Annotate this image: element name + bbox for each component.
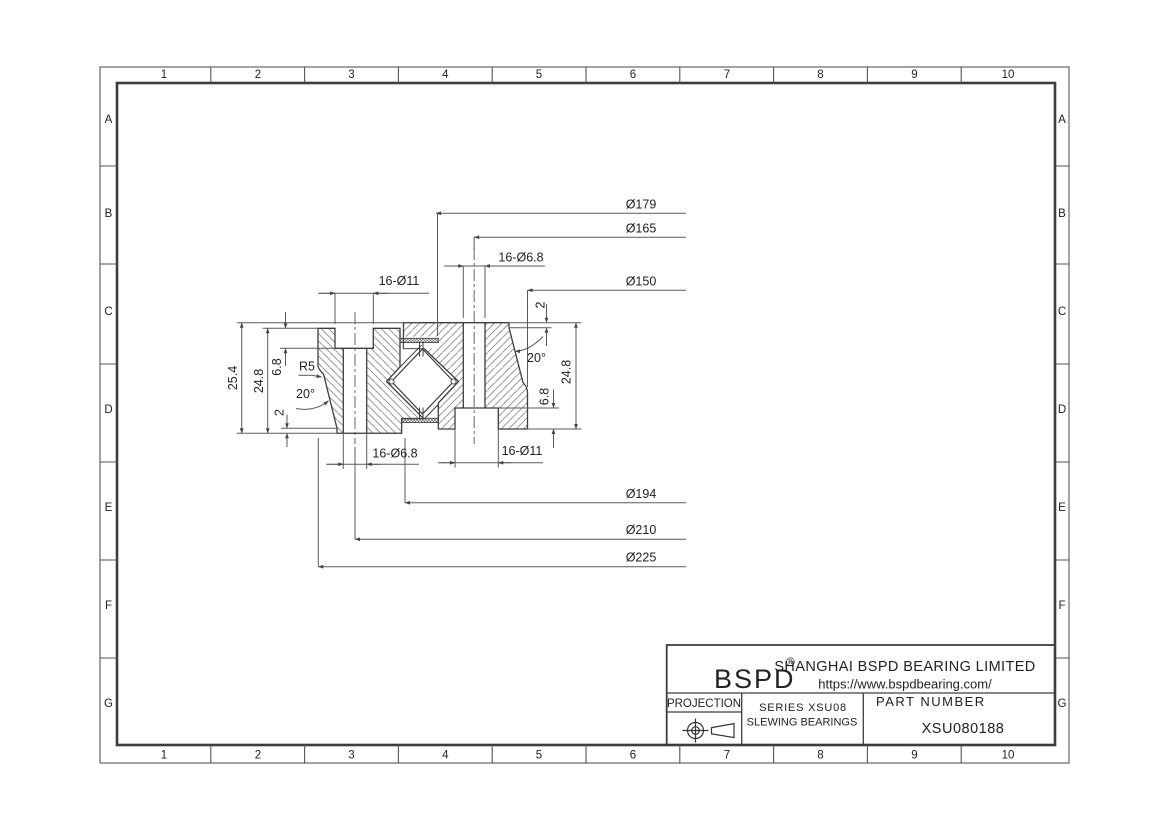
col-label-top: 7 — [724, 69, 730, 81]
row-label-left: F — [105, 600, 112, 612]
col-label-bottom: 2 — [255, 750, 261, 762]
grid-labels: 1 2 3 4 5 6 7 8 9 10 1 2 3 4 5 6 7 8 9 1… — [104, 69, 1067, 762]
dim-holes11-bottom: 16-Ø11 — [502, 444, 543, 458]
projection-label: PROJECTION — [667, 698, 741, 710]
dim-dia194: Ø194 — [626, 487, 657, 501]
dim-h254: 25.4 — [226, 366, 240, 390]
dim-dia150: Ø150 — [626, 275, 657, 289]
dim-dia165: Ø165 — [626, 222, 657, 236]
dim-lip2-bottom: 2 — [273, 409, 287, 416]
projection-symbol-icon — [683, 719, 735, 743]
dim-r5: R5 — [299, 360, 315, 374]
row-label-right: B — [1058, 208, 1066, 220]
part-number-value: XSU080188 — [922, 721, 1005, 737]
col-label-top: 5 — [536, 69, 542, 81]
part-number-label: PART NUMBER — [876, 694, 986, 709]
col-label-bottom: 1 — [161, 750, 167, 762]
col-label-top: 1 — [161, 69, 167, 81]
dim-dia225: Ø225 — [626, 551, 657, 565]
col-label-bottom: 8 — [817, 750, 823, 762]
company-name: SHANGHAI BSPD BEARING LIMITED — [774, 659, 1035, 675]
row-label-left: C — [104, 306, 112, 318]
roller-corner-relief — [451, 379, 456, 384]
row-label-right: C — [1058, 306, 1066, 318]
dim-holes68-top: 16-Ø6.8 — [498, 251, 543, 265]
col-label-bottom: 3 — [348, 750, 354, 762]
row-label-right: D — [1058, 404, 1066, 416]
roller-corner-relief — [389, 379, 394, 384]
row-label-right: G — [1058, 698, 1067, 710]
dim-d68-right: 6.8 — [538, 388, 552, 405]
dim-d68-left: 6.8 — [270, 358, 284, 375]
dim-dia179: Ø179 — [626, 198, 657, 212]
dim-dia210: Ø210 — [626, 523, 657, 537]
col-label-top: 6 — [630, 69, 636, 81]
col-label-top: 10 — [1002, 69, 1015, 81]
dim-holes11-top: 16-Ø11 — [379, 274, 420, 288]
dim-angle20-right: 20° — [527, 351, 546, 365]
title-block: BSPD ® SHANGHAI BSPD BEARING LIMITED htt… — [667, 645, 1055, 745]
dim-holes68-bottom: 16-Ø6.8 — [372, 447, 417, 461]
row-label-left: A — [105, 114, 113, 126]
cad-drawing: 1 2 3 4 5 6 7 8 9 10 1 2 3 4 5 6 7 8 9 1… — [0, 0, 1170, 827]
row-label-right: E — [1058, 502, 1066, 514]
col-label-top: 8 — [817, 69, 823, 81]
col-label-top: 9 — [911, 69, 917, 81]
col-label-top: 2 — [255, 69, 261, 81]
series-line2: SLEWING BEARINGS — [747, 717, 858, 729]
row-label-left: D — [104, 404, 112, 416]
top-seal — [400, 338, 438, 342]
dim-h248-left: 24.8 — [252, 369, 266, 393]
col-label-top: 4 — [442, 69, 449, 81]
row-label-right: A — [1058, 114, 1066, 126]
bottom-seal — [402, 418, 439, 422]
bearing-section — [318, 248, 528, 444]
row-label-left: G — [104, 698, 113, 710]
row-label-left: E — [105, 502, 113, 514]
col-label-bottom: 7 — [724, 750, 730, 762]
drawing-sheet: 1 2 3 4 5 6 7 8 9 10 1 2 3 4 5 6 7 8 9 1… — [0, 0, 1170, 827]
dim-angle20-left: 20° — [296, 387, 315, 401]
col-label-bottom: 9 — [911, 750, 917, 762]
dim-h248-right: 24.8 — [560, 360, 574, 384]
series-line1: SERIES XSU08 — [759, 702, 847, 714]
col-label-bottom: 10 — [1002, 750, 1015, 762]
row-label-left: B — [105, 208, 113, 220]
col-label-bottom: 4 — [442, 750, 449, 762]
col-label-top: 3 — [348, 69, 354, 81]
dim-lip2-top: 2 — [534, 301, 548, 308]
company-website: https://www.bspdbearing.com/ — [818, 677, 992, 692]
col-label-bottom: 6 — [630, 750, 636, 762]
col-label-bottom: 5 — [536, 750, 542, 762]
row-label-right: F — [1058, 600, 1065, 612]
